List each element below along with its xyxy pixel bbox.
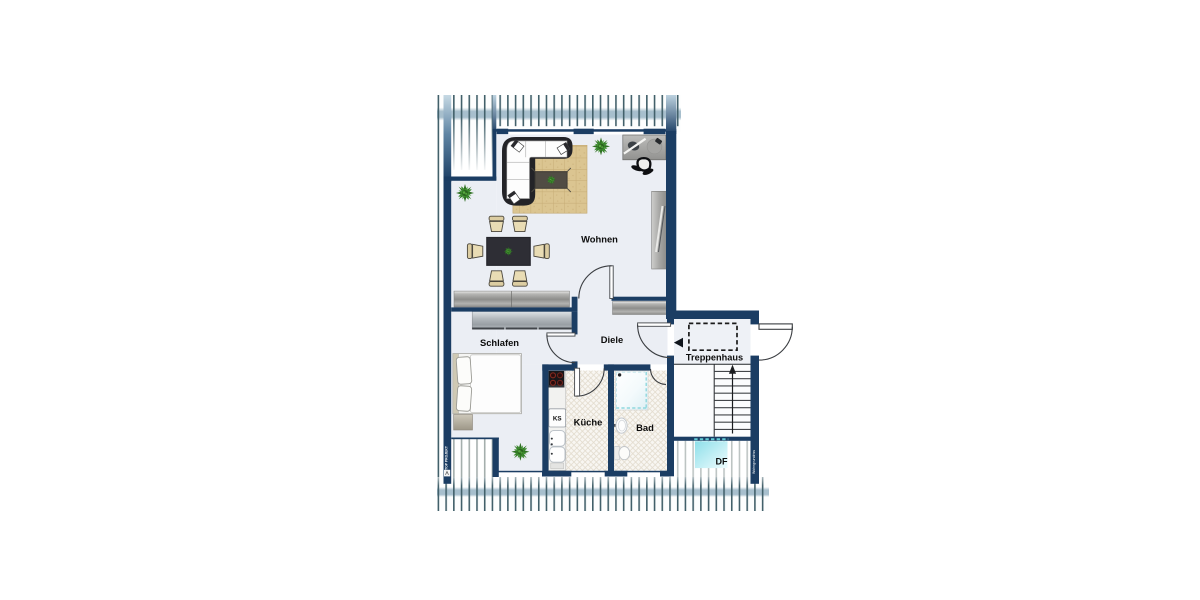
svg-text:DF: DF: [716, 457, 728, 467]
svg-text:TOP PROJEKT: TOP PROJEKT: [445, 445, 449, 470]
svg-text:Schlafen: Schlafen: [480, 337, 519, 348]
svg-text:Treppenhaus: Treppenhaus: [686, 353, 743, 363]
svg-text:Bad: Bad: [636, 422, 654, 433]
svg-text:KS: KS: [553, 415, 562, 422]
svg-text:Wohnen: Wohnen: [581, 234, 618, 245]
svg-text:Diele: Diele: [601, 334, 623, 345]
svg-text:Küche: Küche: [574, 417, 603, 428]
svg-text:Wohngrundriss: Wohngrundriss: [752, 450, 756, 474]
